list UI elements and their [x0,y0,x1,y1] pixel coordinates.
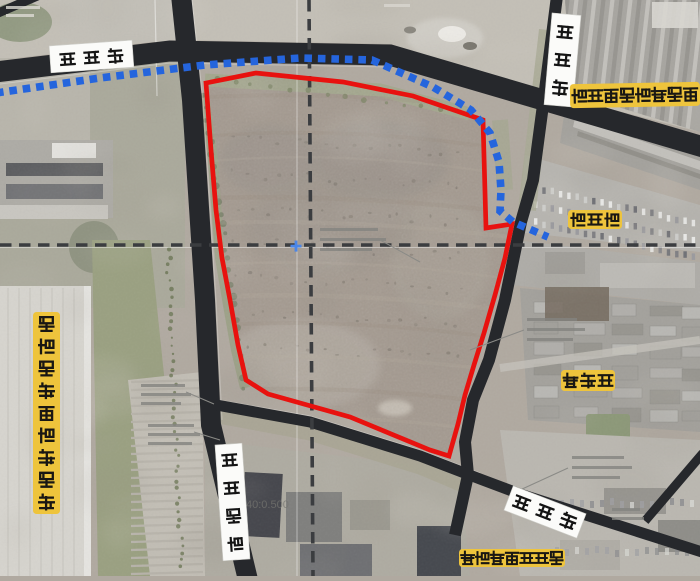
svg-text:40:0.500: 40:0.500 [246,499,289,511]
